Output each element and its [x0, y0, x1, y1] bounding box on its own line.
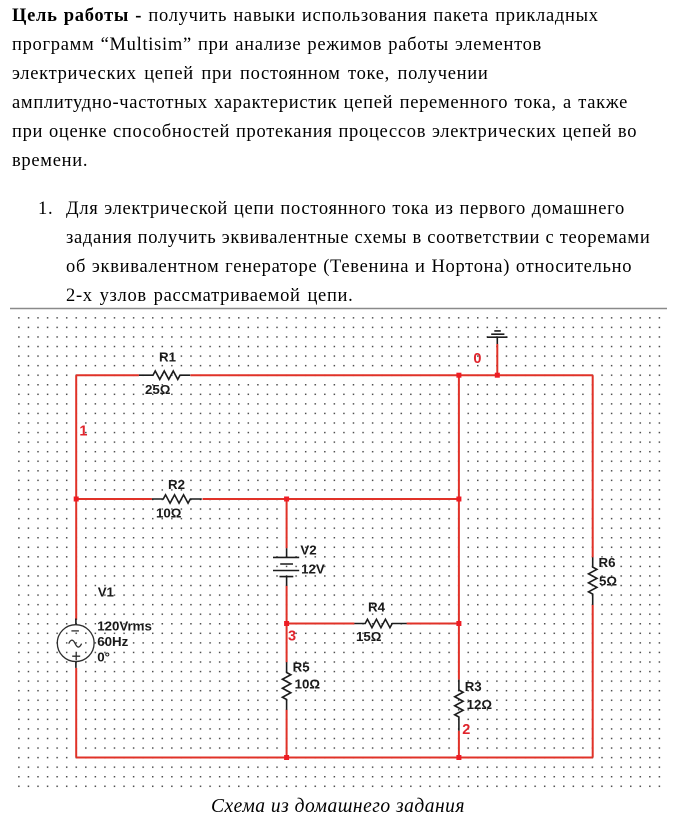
svg-text:R6: R6 [599, 555, 616, 570]
svg-text:1: 1 [79, 424, 87, 440]
svg-text:10Ω: 10Ω [156, 506, 182, 521]
svg-text:R1: R1 [159, 349, 177, 364]
svg-text:R5: R5 [293, 660, 311, 675]
svg-text:60Hz: 60Hz [97, 634, 128, 649]
svg-text:R3: R3 [465, 679, 482, 694]
svg-text:V2: V2 [300, 543, 316, 558]
svg-text:5Ω: 5Ω [599, 574, 617, 589]
svg-text:R2: R2 [168, 477, 185, 492]
svg-text:25Ω: 25Ω [145, 382, 171, 397]
svg-text:V1: V1 [98, 585, 115, 600]
svg-text:12Ω: 12Ω [467, 697, 493, 712]
svg-text:15Ω: 15Ω [356, 629, 382, 644]
svg-text:120Vrms: 120Vrms [97, 619, 152, 634]
svg-text:3: 3 [288, 629, 296, 645]
svg-text:R4: R4 [368, 600, 386, 615]
svg-text:12V: 12V [301, 562, 325, 577]
svg-text:10Ω: 10Ω [295, 677, 321, 692]
svg-text:0°: 0° [97, 650, 110, 665]
svg-text:0: 0 [473, 351, 481, 367]
svg-text:2: 2 [462, 722, 470, 738]
